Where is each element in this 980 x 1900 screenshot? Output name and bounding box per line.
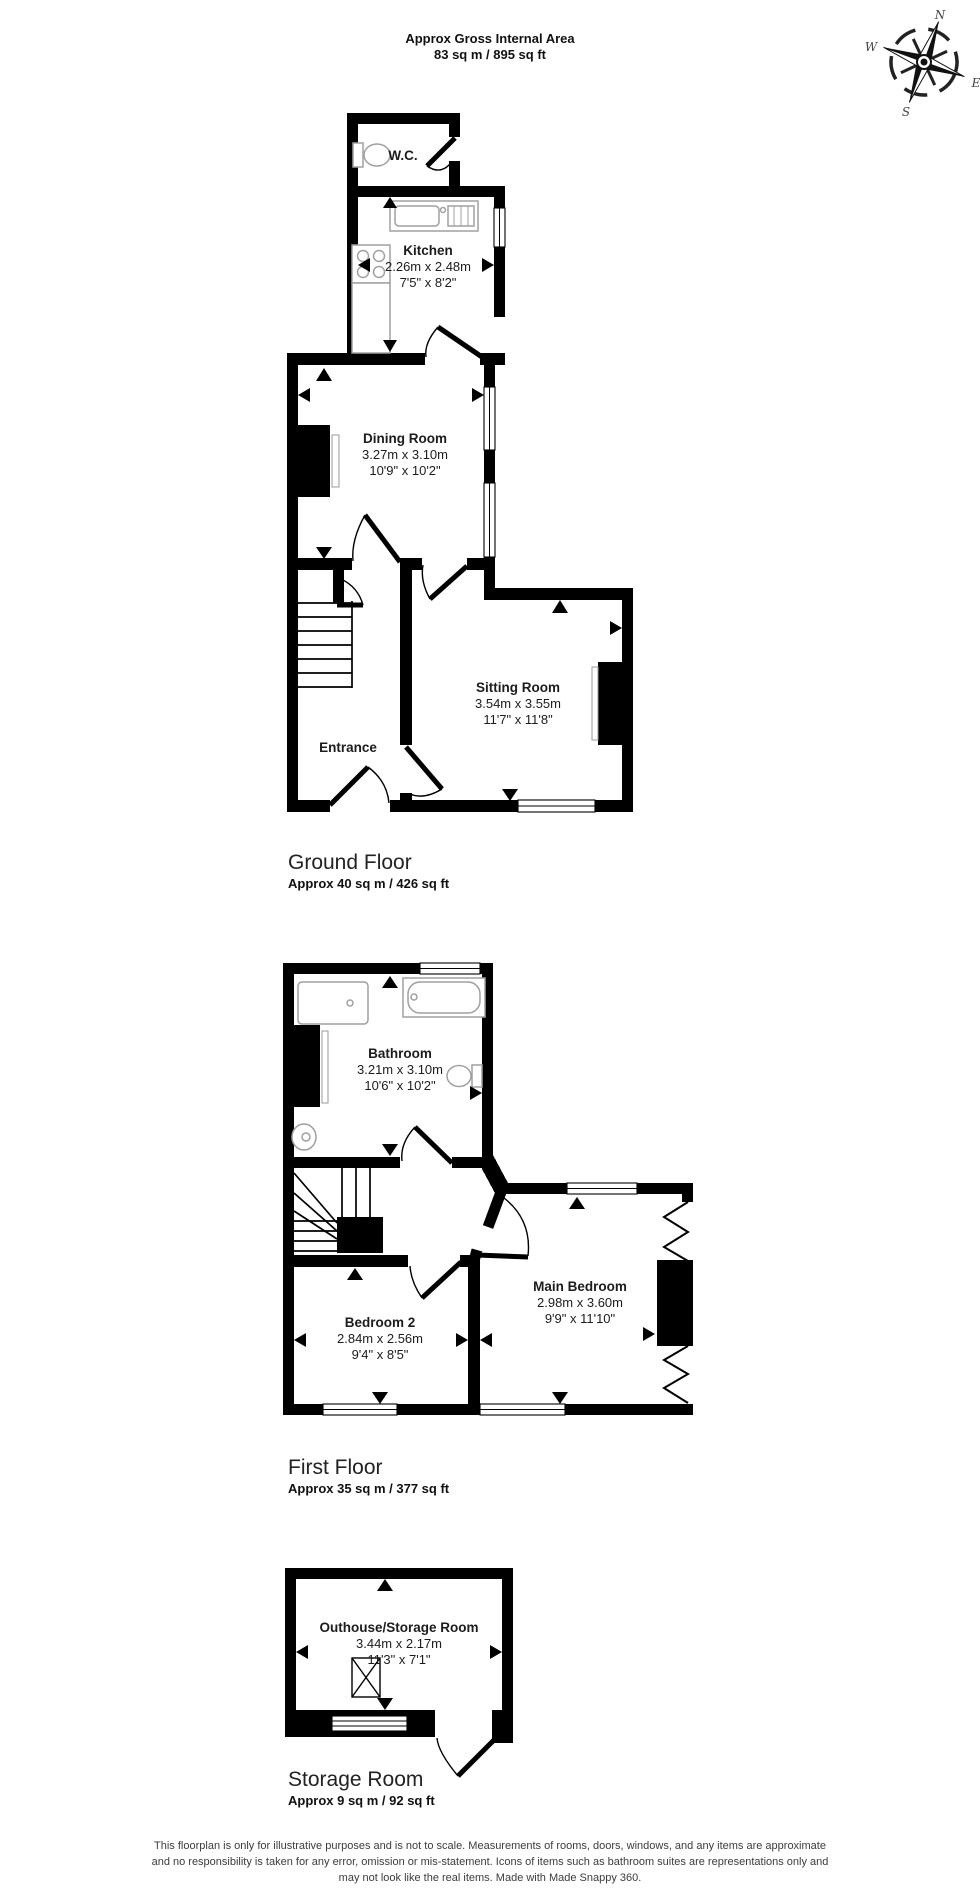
stair-newel-block <box>337 1217 383 1253</box>
hearth-line <box>592 667 598 740</box>
doors <box>402 1127 529 1298</box>
basin-icon <box>292 1124 316 1150</box>
room-label-kitchen: Kitchen 2.26m x 2.48m 7'5" x 8'2" <box>385 242 471 291</box>
chimney-breast-bedroom <box>657 1260 693 1346</box>
first-floor-area: Approx 35 sq m / 377 sq ft <box>288 1480 449 1498</box>
fireplace <box>598 662 633 745</box>
bath-icon <box>403 978 485 1017</box>
dining-door <box>365 515 400 562</box>
kitchen-counter <box>352 283 390 353</box>
compass-w-label: W <box>865 40 879 54</box>
stairs-icon <box>298 601 352 688</box>
disclaimer-line-2: and no responsibility is taken for any e… <box>0 1854 980 1870</box>
compass-s-label: S <box>902 105 910 119</box>
room-label-entrance: Entrance <box>319 739 377 756</box>
sink-icon <box>390 201 478 231</box>
gross-internal-area: Approx Gross Internal Area 83 sq m / 895… <box>0 31 980 63</box>
bathroom-door <box>415 1127 452 1163</box>
disclaimer-line-1: This floorplan is only for illustrative … <box>0 1838 980 1854</box>
compass-e-label: E <box>971 76 980 90</box>
front-door <box>330 767 368 805</box>
gross-area-value: 83 sq m / 895 sq ft <box>0 47 980 63</box>
compass-rose-icon: N E S W <box>862 5 980 120</box>
sitting-door-from-dining <box>430 566 467 599</box>
room-label-bedroom2: Bedroom 2 2.84m x 2.56m 9'4" x 8'5" <box>337 1314 423 1363</box>
compass-n-label: N <box>934 8 946 22</box>
main-bedroom-door <box>477 1255 528 1257</box>
storage-floor-title: Storage Room <box>288 1768 435 1792</box>
alcove-line <box>332 435 339 487</box>
disclaimer-line-3: may not look like the real items. Made w… <box>0 1870 980 1886</box>
room-label-outhouse: Outhouse/Storage Room 3.44m x 2.17m 11'3… <box>319 1619 478 1668</box>
storage-door <box>458 1739 495 1776</box>
shower-icon <box>298 982 368 1024</box>
room-label-bathroom: Bathroom 3.21m x 3.10m 10'6" x 10'2" <box>357 1045 443 1094</box>
windows <box>332 1716 407 1731</box>
first-floor-drawing <box>270 955 700 1435</box>
chimney-breast <box>290 425 330 497</box>
sitting-door-from-hall <box>406 747 442 789</box>
ground-floor-plan: W.C. Kitchen 2.26m x 2.48m 7'5" x 8'2" D… <box>240 105 660 835</box>
ground-floor-drawing <box>240 105 660 835</box>
bedroom2-door <box>422 1262 461 1298</box>
toilet-icon <box>447 1065 482 1087</box>
disclaimer: This floorplan is only for illustrative … <box>0 1838 980 1886</box>
alcove-line <box>322 1031 328 1103</box>
compass-star <box>869 7 979 117</box>
storage-floor-area: Approx 9 sq m / 92 sq ft <box>288 1792 435 1810</box>
gross-area-title: Approx Gross Internal Area <box>0 31 980 47</box>
ground-floor-area: Approx 40 sq m / 426 sq ft <box>288 875 449 893</box>
toilet-icon <box>353 143 390 167</box>
kitchen-door <box>438 327 482 357</box>
doors <box>437 1738 495 1776</box>
floorplan-page: Approx Gross Internal Area 83 sq m / 895… <box>0 0 980 1900</box>
ground-floor-caption: Ground Floor Approx 40 sq m / 426 sq ft <box>288 851 449 893</box>
room-label-sitting: Sitting Room 3.54m x 3.55m 11'7" x 11'8" <box>475 679 561 728</box>
room-label-wc: W.C. <box>388 147 417 164</box>
room-label-main-bedroom: Main Bedroom 2.98m x 3.60m 9'9" x 11'10" <box>533 1278 627 1327</box>
room-label-dining: Dining Room 3.27m x 3.10m 10'9" x 10'2" <box>362 430 448 479</box>
first-floor-plan: Bathroom 3.21m x 3.10m 10'6" x 10'2" Bed… <box>270 955 700 1435</box>
storage-floor-caption: Storage Room Approx 9 sq m / 92 sq ft <box>288 1768 435 1810</box>
first-floor-caption: First Floor Approx 35 sq m / 377 sq ft <box>288 1456 449 1498</box>
ground-floor-title: Ground Floor <box>288 851 449 875</box>
first-floor-title: First Floor <box>288 1456 449 1480</box>
